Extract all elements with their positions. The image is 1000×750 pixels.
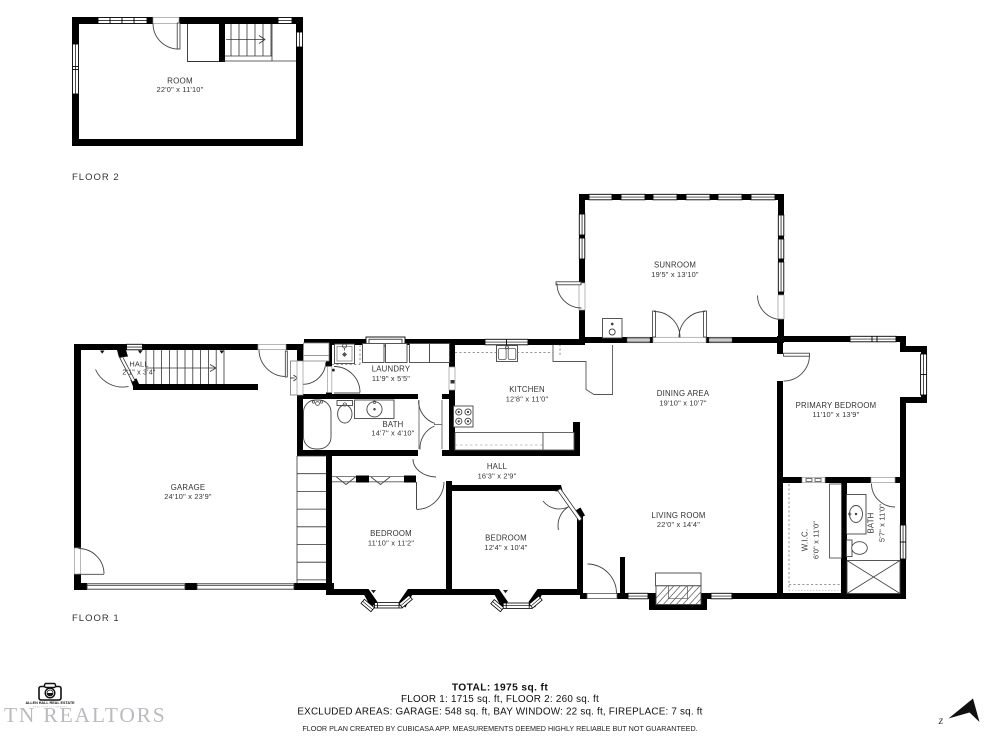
- svg-text:2'1" x 3'4": 2'1" x 3'4": [122, 369, 155, 377]
- svg-text:19'10" x 10'7": 19'10" x 10'7": [659, 399, 707, 408]
- svg-text:22'0" x 14'4": 22'0" x 14'4": [657, 520, 700, 529]
- svg-text:16'3" x 2'9": 16'3" x 2'9": [478, 472, 517, 481]
- svg-text:FLOOR PLAN CREATED BY CUBICASA: FLOOR PLAN CREATED BY CUBICASA APP. MEAS…: [302, 724, 697, 733]
- svg-text:GARAGE: GARAGE: [171, 483, 206, 492]
- svg-text:TOTAL: 1975 sq. ft: TOTAL: 1975 sq. ft: [452, 682, 548, 693]
- svg-text:LAUNDRY: LAUNDRY: [372, 365, 411, 374]
- svg-text:5'7" x 11'0": 5'7" x 11'0": [878, 504, 887, 542]
- svg-text:PRIMARY BEDROOM: PRIMARY BEDROOM: [796, 401, 877, 410]
- svg-text:FLOOR 2: FLOOR 2: [72, 172, 120, 183]
- svg-text:DINING AREA: DINING AREA: [657, 389, 710, 398]
- svg-text:6'0" x 11'0": 6'0" x 11'0": [812, 521, 821, 559]
- svg-text:19'5" x 13'10": 19'5" x 13'10": [651, 270, 699, 279]
- svg-text:BATH: BATH: [867, 512, 876, 533]
- svg-text:SUNROOM: SUNROOM: [654, 261, 696, 270]
- svg-text:12'8" x 11'0": 12'8" x 11'0": [506, 395, 549, 404]
- svg-text:12'4" x 10'4": 12'4" x 10'4": [484, 543, 527, 552]
- svg-text:BEDROOM: BEDROOM: [370, 529, 412, 538]
- svg-text:W.I.C.: W.I.C.: [801, 529, 810, 551]
- svg-text:22'0" x 11'10": 22'0" x 11'10": [157, 85, 204, 94]
- svg-text:R E A L T Y P H O T O G R A: R E A L T Y P H O T O G R A P H Y: [33, 705, 68, 708]
- svg-text:BEDROOM: BEDROOM: [485, 534, 527, 543]
- svg-text:11'10" x 11'2": 11'10" x 11'2": [368, 539, 415, 548]
- svg-text:EXCLUDED AREAS: GARAGE: 548 sq: EXCLUDED AREAS: GARAGE: 548 sq. ft, BAY …: [297, 707, 702, 718]
- svg-text:KITCHEN: KITCHEN: [509, 385, 545, 394]
- svg-text:ALLEN HALL REAL ESTATE: ALLEN HALL REAL ESTATE: [25, 701, 75, 705]
- svg-text:HALL: HALL: [487, 462, 508, 471]
- svg-text:TN REALTORS: TN REALTORS: [4, 703, 167, 727]
- svg-text:11'10" x 13'9": 11'10" x 13'9": [813, 410, 860, 419]
- svg-text:FLOOR 1: FLOOR 1: [72, 613, 120, 624]
- svg-text:11'9" x 5'5": 11'9" x 5'5": [372, 374, 410, 383]
- svg-text:LIVING ROOM: LIVING ROOM: [651, 511, 705, 520]
- svg-text:14'7" x 4'10": 14'7" x 4'10": [371, 429, 414, 438]
- svg-text:24'10" x 23'9": 24'10" x 23'9": [164, 492, 212, 501]
- svg-text:HALL: HALL: [129, 360, 148, 369]
- svg-text:FLOOR 1: 1715 sq. ft, FLOOR 2:: FLOOR 1: 1715 sq. ft, FLOOR 2: 260 sq. f…: [401, 694, 599, 705]
- svg-text:z: z: [938, 715, 944, 727]
